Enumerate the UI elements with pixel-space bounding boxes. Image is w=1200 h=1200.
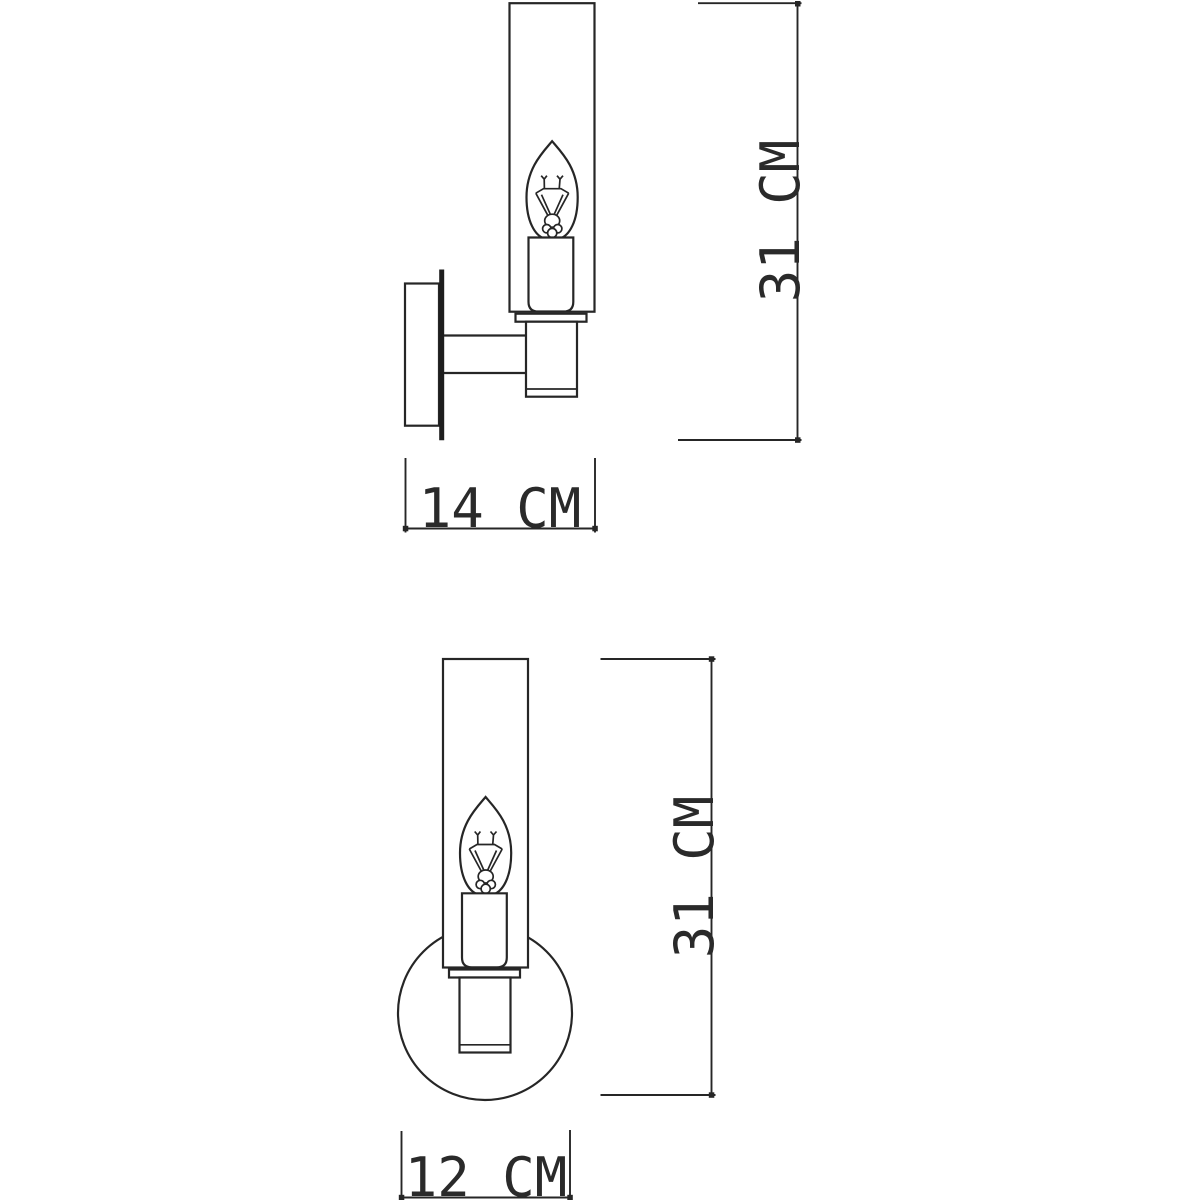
sconce-dimension-drawing: 31 CM 14 CM 31 CM bbox=[0, 0, 1200, 1200]
front-view: 31 CM 12 CM bbox=[398, 656, 726, 1200]
dimension-end-dot bbox=[709, 1092, 715, 1098]
width-dimension-label: 12 CM bbox=[405, 1146, 568, 1200]
dimension-end-dot bbox=[399, 1195, 405, 1200]
side-view-fixture bbox=[510, 3, 595, 397]
height-dimension-label: 31 CM bbox=[663, 796, 726, 959]
dimension-end-dot bbox=[795, 437, 801, 443]
height-dimension-label: 31 CM bbox=[749, 140, 812, 303]
dimension-end-dot bbox=[592, 526, 598, 532]
front-view-fixture bbox=[443, 659, 528, 1053]
width-dimension-label: 14 CM bbox=[419, 477, 582, 540]
side-view-height-dimension: 31 CM bbox=[678, 1, 812, 443]
wall-plate-side-profile bbox=[405, 284, 439, 426]
side-view-width-dimension: 14 CM bbox=[403, 458, 598, 540]
dimension-end-dot bbox=[709, 656, 715, 662]
side-view: 31 CM 14 CM bbox=[403, 1, 812, 540]
dimension-end-dot bbox=[567, 1195, 573, 1200]
dimension-end-dot bbox=[403, 526, 409, 532]
front-view-width-dimension: 12 CM bbox=[399, 1130, 573, 1200]
front-view-height-dimension: 31 CM bbox=[601, 656, 727, 1098]
dimension-end-dot bbox=[795, 1, 801, 7]
technical-drawing-canvas: 31 CM 14 CM 31 CM bbox=[0, 0, 1200, 1200]
